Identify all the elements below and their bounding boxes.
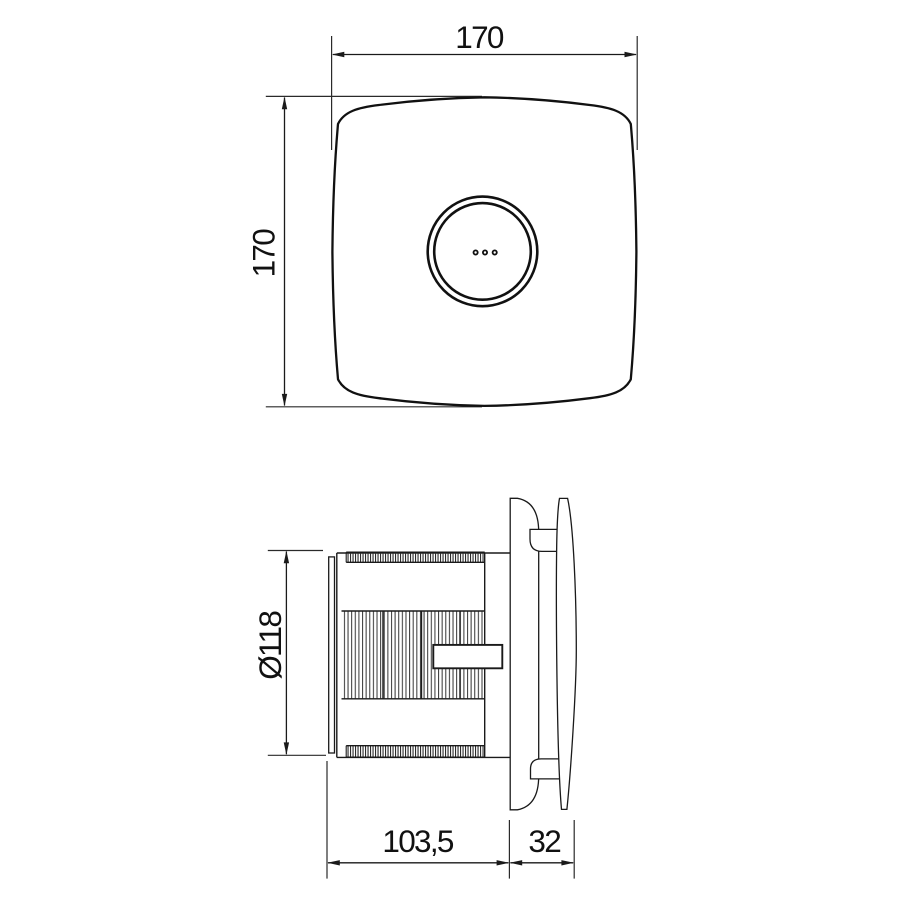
svg-text:170: 170	[455, 19, 504, 55]
svg-text:Ø118: Ø118	[252, 611, 288, 680]
svg-text:103,5: 103,5	[382, 823, 454, 859]
svg-text:170: 170	[246, 229, 282, 278]
svg-text:32: 32	[528, 823, 560, 859]
